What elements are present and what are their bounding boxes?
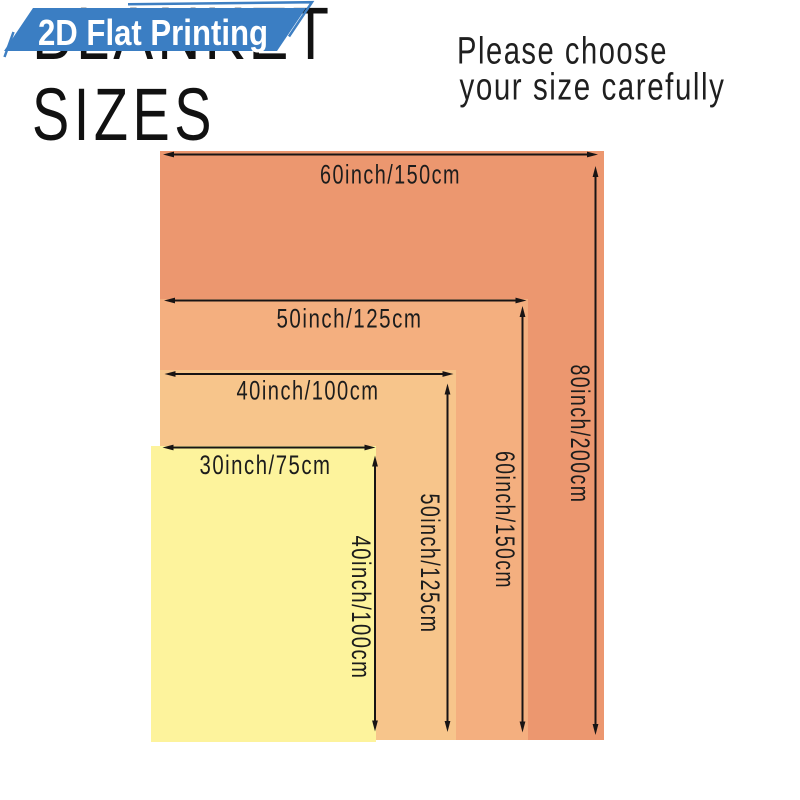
svg-text:40inch/100cm: 40inch/100cm — [237, 376, 380, 406]
svg-text:30inch/75cm: 30inch/75cm — [200, 450, 332, 480]
svg-text:60inch/150cm: 60inch/150cm — [490, 451, 520, 589]
svg-text:your size carefully: your size carefully — [460, 66, 726, 108]
svg-text:2D Flat Printing: 2D Flat Printing — [38, 12, 268, 53]
svg-text:50inch/125cm: 50inch/125cm — [415, 494, 445, 634]
svg-text:40inch/100cm: 40inch/100cm — [346, 536, 376, 680]
svg-text:80inch/200cm: 80inch/200cm — [565, 365, 595, 504]
svg-text:SIZES: SIZES — [32, 73, 216, 156]
svg-text:60inch/150cm: 60inch/150cm — [320, 160, 461, 190]
svg-text:50inch/125cm: 50inch/125cm — [277, 304, 423, 334]
